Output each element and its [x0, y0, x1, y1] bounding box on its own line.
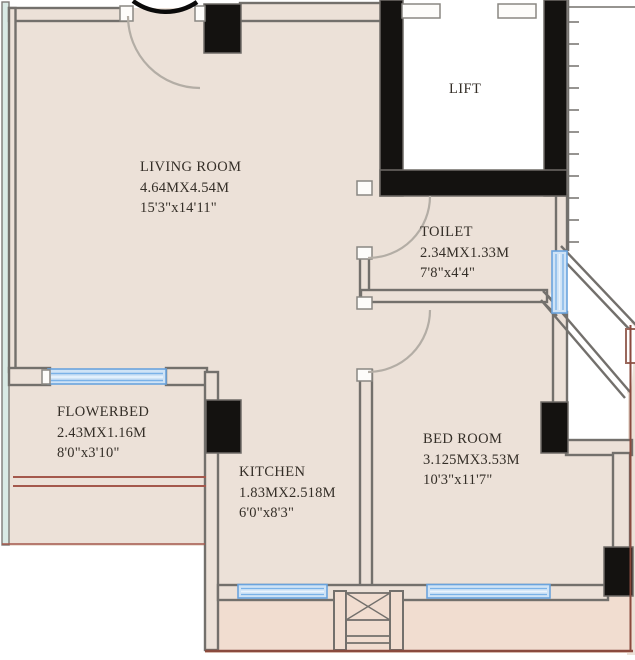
lift-door-jamb-right — [498, 4, 536, 18]
kitchen-window — [238, 585, 327, 599]
wall-flowerbed-top-b — [166, 368, 207, 385]
room-dim-m: 2.43MX1.16M — [57, 423, 149, 444]
living-room-label: LIVING ROOM 4.64MX4.54M 15'3"x14'11" — [140, 157, 241, 219]
floor-plan: LIVING ROOM 4.64MX4.54M 15'3"x14'11" LIF… — [0, 0, 635, 660]
toilet-label: TOILET 2.34MX1.33M 7'8"x4'4" — [420, 222, 509, 284]
flowerbed-label: FLOWERBED 2.43MX1.16M 8'0"x3'10" — [57, 402, 149, 464]
room-name: BED ROOM — [423, 429, 520, 450]
room-dim-ft: 8'0"x3'10" — [57, 443, 149, 464]
room-dim-ft: 15'3"x14'11" — [140, 198, 241, 219]
bedroom-window — [427, 585, 550, 599]
room-dim-m: 4.64MX4.54M — [140, 178, 241, 199]
column-kitchen — [206, 400, 241, 453]
room-dim-ft: 10'3"x11'7" — [423, 470, 520, 491]
room-name: KITCHEN — [239, 462, 336, 483]
wall-toilet-bottom — [361, 290, 547, 302]
room-dim-m: 3.125MX3.53M — [423, 450, 520, 471]
room-dim-ft: 6'0"x8'3" — [239, 503, 336, 524]
room-dim-m: 2.34MX1.33M — [420, 243, 509, 264]
wall-bedroom-east-vertical — [613, 453, 630, 550]
lift-label: LIFT — [449, 79, 481, 100]
room-name: LIVING ROOM — [140, 157, 241, 178]
wall-left — [9, 8, 16, 372]
kitchen-label: KITCHEN 1.83MX2.518M 6'0"x8'3" — [239, 462, 336, 524]
bed-room-label: BED ROOM 3.125MX3.53M 10'3"x11'7" — [423, 429, 520, 491]
column-entrance — [204, 4, 241, 53]
lift-door-jamb-left — [402, 4, 440, 18]
flowerbed-window — [48, 369, 166, 384]
column-bedroom-ne — [541, 402, 568, 453]
room-dim-ft: 7'8"x4'4" — [420, 263, 509, 284]
wall-top-mid — [240, 3, 381, 21]
column-bedroom-se — [604, 547, 633, 596]
floor-plan-drawing — [0, 0, 635, 660]
room-name: LIFT — [449, 79, 481, 100]
terrace-area — [205, 596, 632, 653]
room-dim-m: 1.83MX2.518M — [239, 483, 336, 504]
room-name: TOILET — [420, 222, 509, 243]
wall-top-left — [9, 8, 128, 21]
room-name: FLOWERBED — [57, 402, 149, 423]
wall-toilet-right-exterior — [556, 195, 567, 253]
wall-kitchen-bedroom-divider — [360, 370, 372, 600]
toilet-side-window — [552, 251, 567, 313]
